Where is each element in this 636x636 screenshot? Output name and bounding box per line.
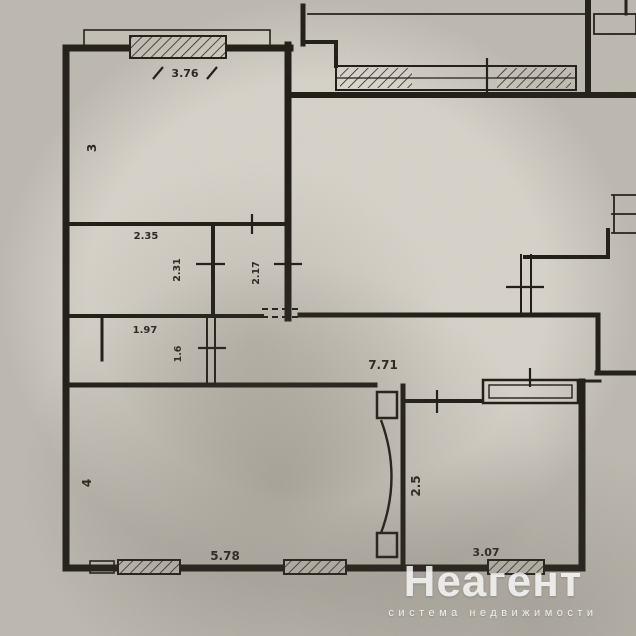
dim-label-bedroom-width: 3.07: [472, 546, 499, 559]
dim-label-wc-height: 2.17: [251, 261, 262, 284]
dim-label-niche-height: 1.6: [173, 345, 184, 362]
dim-label-hallway-area: 7.71: [368, 358, 398, 372]
dim-label-living-room-height: 4: [80, 479, 94, 487]
dim-label-bath-height: 2.31: [172, 258, 183, 281]
dim-label-top-room-height: 3: [85, 144, 99, 152]
floor-plan-photo: 3.76 3 2.35 2.31 2.17 1.97 1.6 7.71 4 5.…: [0, 0, 636, 636]
dim-label-living-room-width: 5.78: [210, 549, 240, 563]
dim-label-bath-width: 2.35: [134, 231, 159, 242]
dim-label-niche-width: 1.97: [133, 325, 158, 336]
dim-label-top-room-width: 3.76: [171, 67, 198, 80]
dim-label-bedroom-height: 2.5: [409, 475, 423, 496]
floor-plan-drawing: 3.76 3 2.35 2.31 2.17 1.97 1.6 7.71 4 5.…: [0, 0, 636, 636]
